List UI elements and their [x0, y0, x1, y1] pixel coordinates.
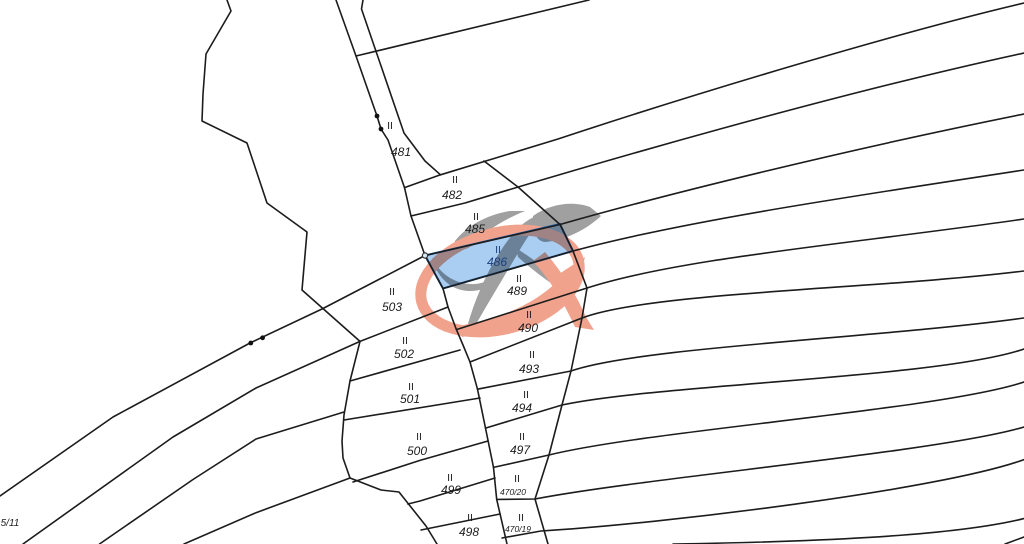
- svg-text:486: 486: [487, 255, 507, 269]
- svg-text:501: 501: [400, 392, 420, 406]
- svg-text:II: II: [387, 120, 393, 132]
- svg-text:493: 493: [519, 362, 539, 376]
- svg-text:II: II: [467, 512, 473, 524]
- svg-text:497: 497: [510, 443, 531, 457]
- svg-text:502: 502: [394, 347, 414, 361]
- svg-text:481: 481: [391, 145, 411, 159]
- svg-text:470/19: 470/19: [505, 524, 531, 534]
- svg-text:489: 489: [507, 284, 527, 298]
- svg-text:II: II: [514, 473, 520, 485]
- svg-text:5/11: 5/11: [1, 518, 20, 529]
- svg-text:482: 482: [442, 188, 462, 202]
- svg-text:499: 499: [441, 483, 461, 497]
- svg-text:II: II: [519, 431, 525, 443]
- svg-text:II: II: [518, 512, 524, 524]
- svg-text:485: 485: [465, 222, 485, 236]
- svg-text:500: 500: [407, 444, 427, 458]
- svg-text:498: 498: [459, 525, 479, 539]
- svg-text:II: II: [526, 309, 532, 321]
- svg-text:470/20: 470/20: [500, 487, 526, 497]
- svg-text:II: II: [529, 349, 535, 361]
- svg-text:490: 490: [518, 321, 538, 335]
- svg-text:II: II: [452, 174, 458, 186]
- svg-text:II: II: [389, 286, 395, 298]
- svg-text:II: II: [523, 389, 529, 401]
- svg-text:II: II: [402, 335, 408, 347]
- svg-text:II: II: [416, 431, 422, 443]
- svg-text:503: 503: [382, 300, 402, 314]
- svg-text:494: 494: [512, 401, 532, 415]
